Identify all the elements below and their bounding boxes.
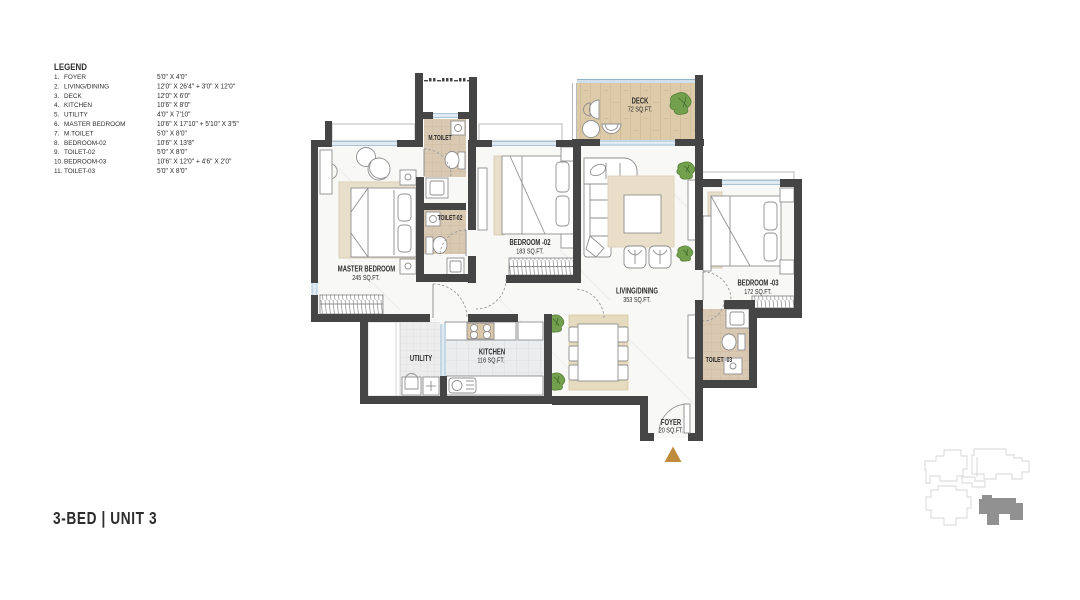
svg-text:20 SQ.FT.: 20 SQ.FT. (659, 427, 684, 435)
svg-text:7.: 7. (54, 130, 60, 137)
svg-text:5'0" X 8'0": 5'0" X 8'0" (157, 149, 187, 156)
svg-text:172 SQ.FT.: 172 SQ.FT. (744, 288, 772, 296)
svg-text:10'6" X 8'0": 10'6" X 8'0" (157, 102, 191, 109)
svg-text:12'0" X 6'0": 12'0" X 6'0" (157, 93, 191, 100)
svg-text:M.TOILET: M.TOILET (64, 130, 93, 137)
svg-text:LIVING/DINING: LIVING/DINING (64, 83, 109, 90)
svg-text:BEDROOM-02: BEDROOM-02 (64, 140, 107, 147)
svg-text:10'6" X 12'0" + 4'6" X 2'0": 10'6" X 12'0" + 4'6" X 2'0" (157, 158, 232, 165)
svg-text:10'6" X 13'8": 10'6" X 13'8" (157, 140, 195, 147)
svg-text:353 SQ.FT.: 353 SQ.FT. (623, 296, 651, 304)
svg-text:FOYER: FOYER (64, 74, 86, 81)
svg-text:5.: 5. (54, 112, 60, 119)
svg-text:10.: 10. (54, 159, 63, 166)
svg-text:3-BED | UNIT 3: 3-BED | UNIT 3 (53, 509, 157, 528)
svg-text:3.: 3. (54, 93, 60, 100)
svg-text:245 SQ.FT.: 245 SQ.FT. (352, 274, 380, 282)
svg-text:6.: 6. (54, 121, 60, 128)
svg-text:KITCHEN: KITCHEN (479, 349, 505, 357)
svg-text:BEDROOM -02: BEDROOM -02 (510, 239, 551, 247)
svg-text:2.: 2. (54, 83, 60, 90)
svg-text:4'0" X 7'10": 4'0" X 7'10" (157, 111, 191, 118)
svg-text:LEGEND: LEGEND (54, 61, 87, 72)
svg-text:UTILITY: UTILITY (64, 112, 89, 119)
svg-text:DECK: DECK (64, 93, 82, 100)
svg-text:TOILET -03: TOILET -03 (706, 356, 733, 364)
svg-text:M.TOILET: M.TOILET (428, 134, 452, 142)
svg-text:72 SQ.FT.: 72 SQ.FT. (628, 106, 653, 114)
svg-text:10'6" X 17'10" + 5'10" X 3'5": 10'6" X 17'10" + 5'10" X 3'5" (157, 121, 239, 128)
svg-text:LIVING/DINING: LIVING/DINING (616, 288, 658, 296)
svg-text:183 SQ.FT.: 183 SQ.FT. (516, 248, 544, 256)
svg-text:BEDROOM-03: BEDROOM-03 (64, 159, 107, 166)
svg-text:8.: 8. (54, 140, 60, 147)
svg-text:TOILET-02: TOILET-02 (64, 149, 96, 156)
svg-text:9.: 9. (54, 149, 60, 156)
svg-text:TOILET-02: TOILET-02 (438, 214, 463, 222)
svg-text:KITCHEN: KITCHEN (64, 102, 92, 109)
svg-text:DECK: DECK (632, 98, 649, 106)
svg-text:11.: 11. (54, 168, 63, 175)
svg-text:BEDROOM -03: BEDROOM -03 (738, 280, 779, 288)
svg-text:MASTER BEDROOM: MASTER BEDROOM (338, 266, 396, 274)
svg-text:5'0" X 4'0": 5'0" X 4'0" (157, 74, 187, 81)
svg-text:MASTER BEDROOM: MASTER BEDROOM (64, 121, 125, 128)
svg-text:5'0" X 8'0": 5'0" X 8'0" (157, 130, 187, 137)
svg-text:5'0" X 8'0": 5'0" X 8'0" (157, 168, 187, 175)
svg-text:4.: 4. (54, 102, 60, 109)
svg-text:UTILITY: UTILITY (410, 355, 433, 363)
svg-text:TOILET-03: TOILET-03 (64, 168, 96, 175)
svg-text:12'0" X 26'4" + 3'0" X 12'0": 12'0" X 26'4" + 3'0" X 12'0" (157, 83, 236, 90)
svg-text:1.: 1. (54, 74, 60, 81)
svg-text:116 SQ.FT.: 116 SQ.FT. (477, 357, 504, 365)
